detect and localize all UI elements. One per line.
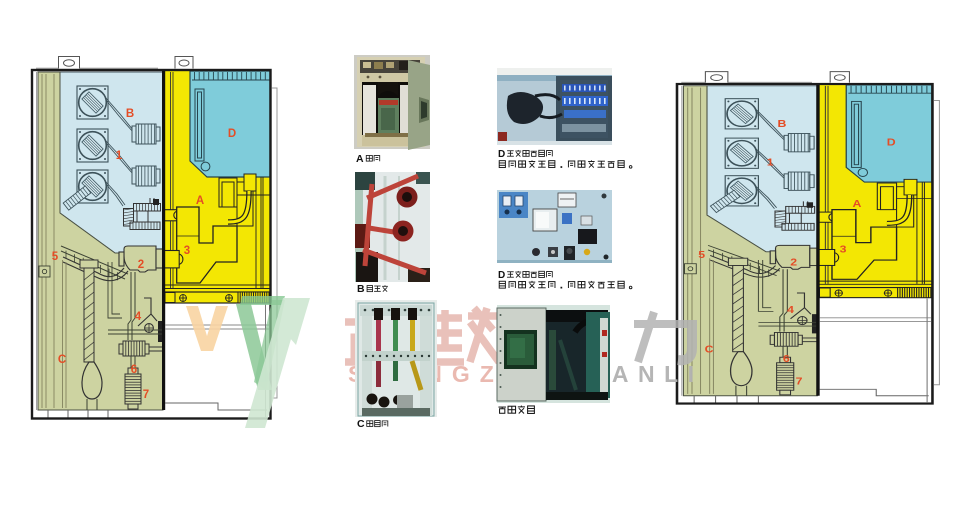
svg-text:7: 7 (796, 376, 803, 387)
svg-text:4: 4 (787, 305, 795, 316)
svg-text:1: 1 (116, 150, 123, 162)
svg-text:5: 5 (52, 251, 59, 263)
svg-text:C: C (357, 418, 365, 430)
svg-text:5: 5 (698, 250, 706, 261)
svg-text:A: A (852, 199, 861, 210)
svg-text:A: A (356, 153, 364, 165)
svg-text:7: 7 (143, 389, 149, 401)
svg-text:3: 3 (840, 244, 847, 255)
svg-text:6: 6 (131, 364, 137, 376)
svg-text:IANLI: IANLI (596, 361, 704, 387)
svg-text:D: D (228, 128, 236, 140)
svg-text:D: D (887, 137, 896, 148)
svg-text:B: B (778, 119, 787, 130)
svg-text:C: C (58, 354, 66, 366)
svg-text:B: B (126, 108, 134, 120)
svg-text:B: B (357, 283, 365, 295)
svg-text:2: 2 (138, 259, 144, 271)
svg-text:2: 2 (790, 257, 797, 268)
svg-text:D: D (498, 149, 505, 160)
svg-text:C: C (705, 344, 714, 355)
svg-text:4: 4 (135, 311, 142, 323)
svg-text:6: 6 (783, 354, 790, 365)
svg-text:A: A (196, 195, 204, 207)
svg-text:D: D (498, 270, 505, 281)
svg-text:3: 3 (184, 245, 190, 257)
svg-text:1: 1 (767, 157, 775, 168)
